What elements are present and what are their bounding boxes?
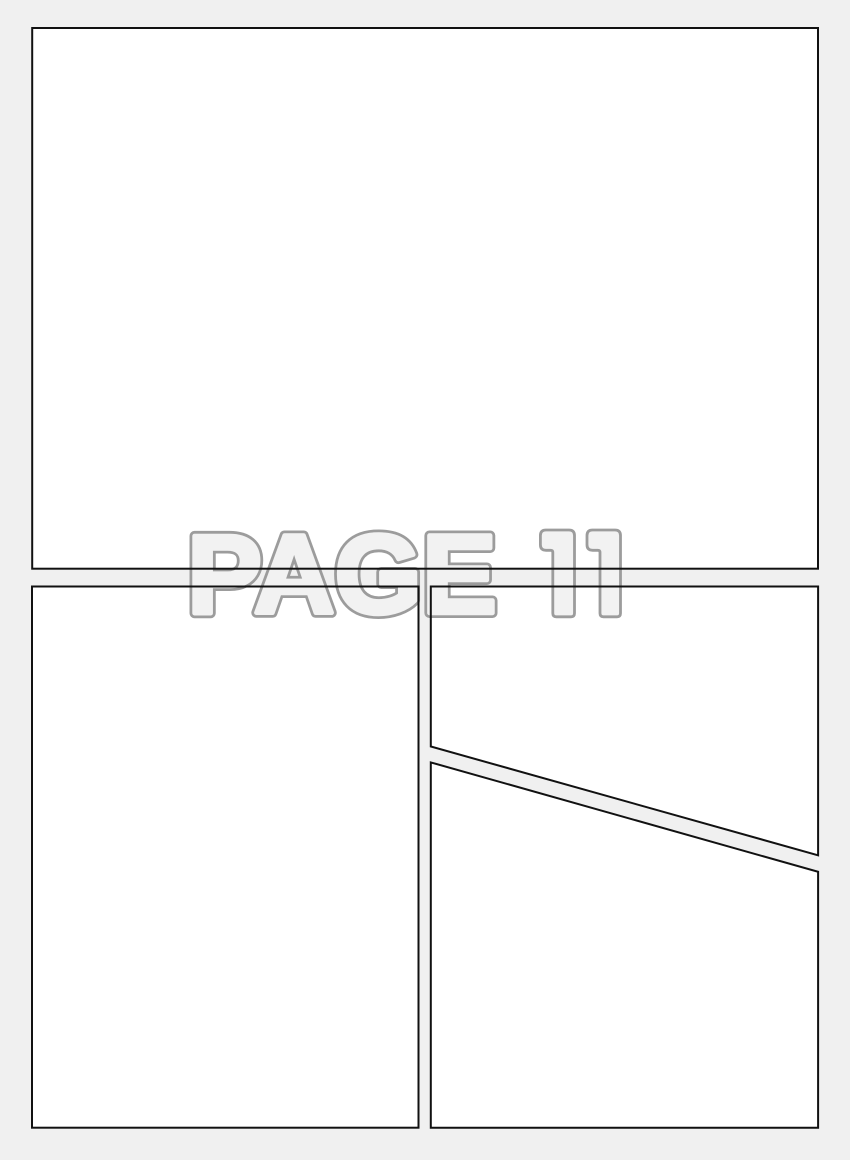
svg-text:PAGE: PAGE	[187, 511, 497, 637]
